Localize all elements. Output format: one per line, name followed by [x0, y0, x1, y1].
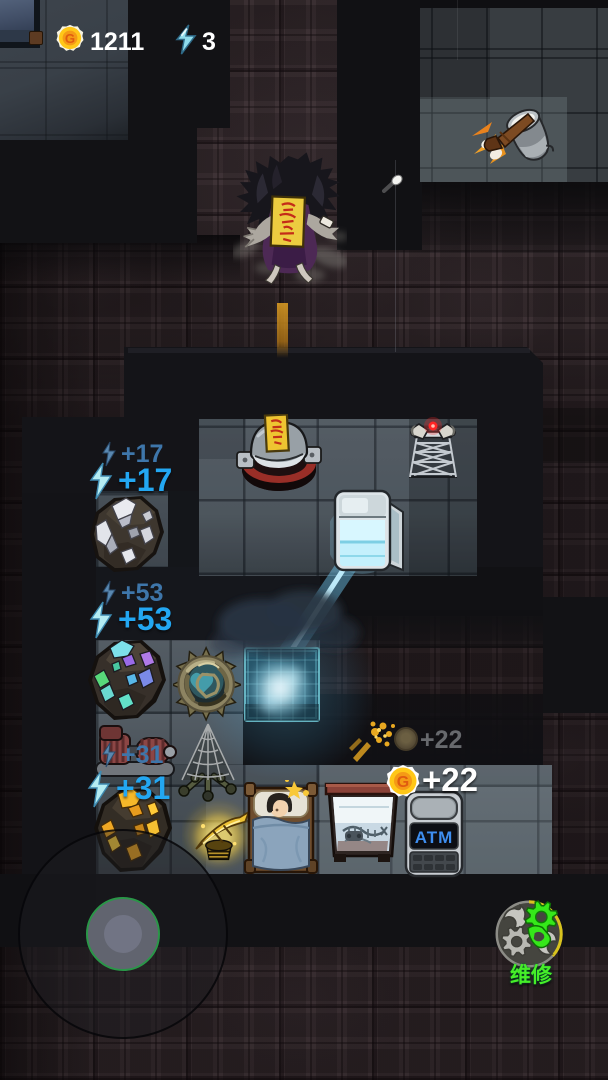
svg-text:ATM: ATM	[415, 828, 454, 847]
svg-text:G: G	[397, 774, 409, 791]
svg-text:G: G	[65, 31, 75, 46]
